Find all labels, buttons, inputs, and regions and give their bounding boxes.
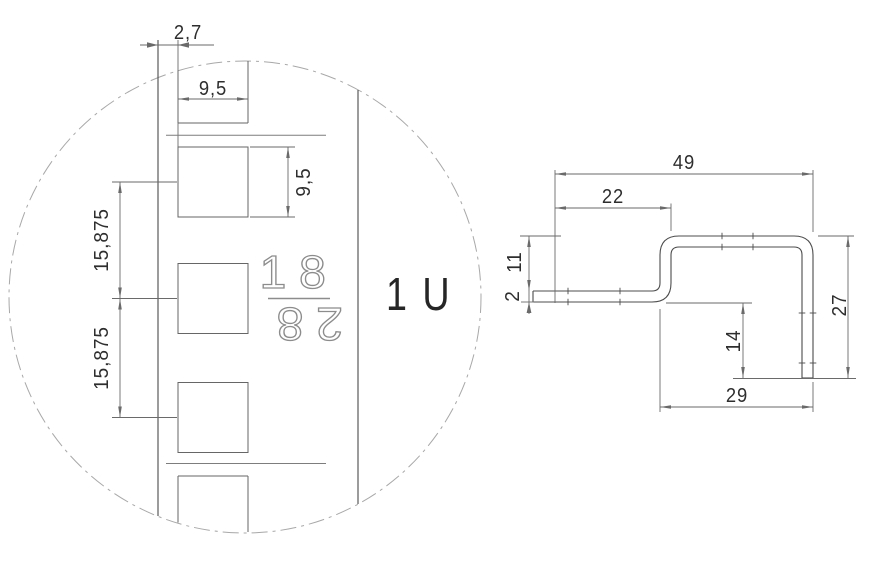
- rail-stamp-number-top: 18: [260, 249, 339, 295]
- square-hole: [178, 383, 248, 453]
- dim-label-hole-width: 9,5: [199, 79, 227, 99]
- profile-outer-contour: [533, 236, 813, 378]
- dim-label-leg-below-flange: 14: [724, 329, 744, 352]
- dim-label-edge-offset: 2,7: [174, 23, 202, 43]
- bend-marks: [568, 233, 816, 363]
- rail-stamp-number-bottom: 28: [264, 301, 343, 347]
- dim-label-overall-height: 27: [830, 293, 850, 316]
- square-hole: [178, 264, 248, 334]
- dim-label-hole-pitch-upper: 15,875: [92, 208, 112, 272]
- dim-label-hole-height: 9,5: [294, 167, 314, 196]
- profile-view: [520, 170, 856, 412]
- rack-unit-label: 1 U: [386, 271, 452, 317]
- dim-label-bottom-width: 29: [726, 386, 748, 406]
- dim-label-step-height: 11: [505, 251, 525, 273]
- profile-inner-contour: [533, 247, 802, 378]
- dim-label-overall-width: 49: [673, 153, 695, 173]
- square-holes: [178, 61, 248, 532]
- dim-label-material-thickness: 2: [503, 290, 523, 302]
- technical-drawing-page: 2,7 9,5 9,5 15,875 15,875 18 28 1 U 49 2…: [0, 0, 874, 584]
- dim-label-hole-pitch-lower: 15,875: [92, 326, 112, 390]
- square-hole: [178, 147, 248, 217]
- dim-label-step-offset: 22: [602, 187, 624, 207]
